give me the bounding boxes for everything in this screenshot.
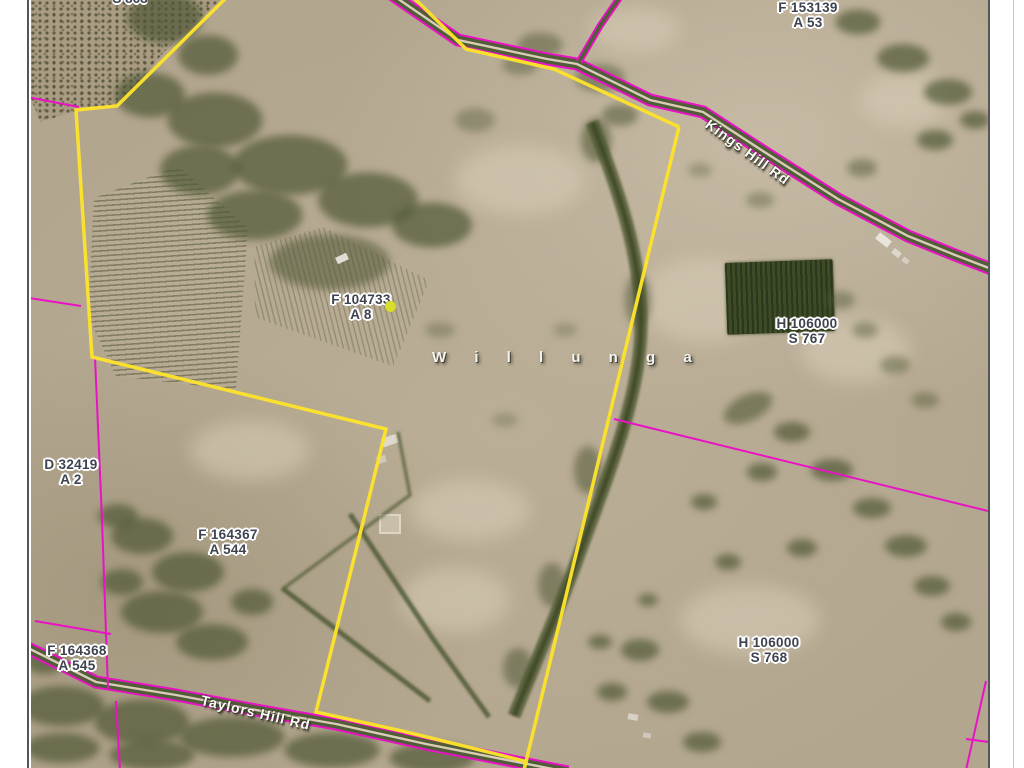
building (376, 455, 387, 464)
vegetation-patch (597, 683, 627, 701)
vegetation-patch (647, 691, 689, 713)
vegetation-patch (455, 108, 495, 132)
vegetation-patch (924, 79, 972, 105)
parcel-number: A 2 (60, 472, 81, 487)
vegetation-patch (502, 55, 538, 75)
terrain-patch (590, 8, 680, 53)
vegetation-patch (852, 322, 878, 338)
highlight-boundary (76, 0, 679, 768)
locality-label: W i l l u n g a (432, 349, 704, 366)
vegetation-patch (152, 552, 224, 592)
vegetation-patch (688, 163, 712, 177)
vegetation-patch (917, 130, 953, 150)
plan-number: F 104733 (331, 292, 390, 307)
vegetation-patch (836, 10, 881, 35)
plan-number: H 106000 (739, 635, 800, 650)
plan-number: S 868 (112, 0, 147, 6)
vegetation-patch (98, 504, 138, 528)
vegetation-patch (719, 385, 777, 431)
vegetation-patch (101, 569, 143, 595)
vegetation-patch (20, 686, 105, 726)
vegetation-patch (95, 700, 190, 745)
vegetation-patch (208, 190, 303, 240)
parcel-number: A 8 (350, 307, 371, 322)
vegetation-patch (691, 494, 717, 510)
vegetation-patch (847, 159, 877, 177)
plan-number: F 164368 (47, 643, 106, 658)
vegetation-patch (581, 118, 611, 162)
vegetation-patch (160, 145, 240, 195)
terrain-patch (400, 568, 510, 633)
vegetation-patch (787, 539, 817, 557)
map-outer-border (1013, 0, 1014, 768)
parcel-number: S 768 (751, 650, 788, 665)
terrain-patch (410, 480, 530, 540)
vegetation-patch (914, 576, 950, 596)
building (381, 434, 399, 448)
building (901, 256, 910, 264)
parcel-label-truncated: S 868 (112, 0, 147, 7)
terrain-patch (455, 145, 585, 215)
building (643, 732, 652, 738)
map-border-right (988, 0, 990, 768)
road-kings-hill (391, 0, 994, 270)
plan-number: H 106000 (777, 316, 838, 331)
vegetation-patch (575, 64, 625, 92)
vegetation-patch (390, 743, 475, 768)
vegetation-patch (425, 322, 455, 338)
vegetation-patch (553, 323, 577, 337)
parcel-number: S 767 (789, 331, 826, 346)
vegetation-patch (715, 554, 741, 570)
vegetation-patch (621, 639, 659, 661)
terrain-patch (190, 420, 310, 480)
vegetation-patch (941, 613, 971, 631)
vegetation-patch (285, 733, 380, 768)
vegetation-patch (877, 44, 929, 72)
vegetation-patch (911, 392, 939, 408)
plan-number: F 164367 (198, 527, 257, 542)
vegetation-patch (503, 648, 533, 688)
road-label-kings-hill: Kings Hill Rd (703, 116, 793, 188)
building (875, 232, 892, 248)
selected-point-marker (385, 301, 396, 312)
parcel-label: F 153139 A 53 (778, 0, 837, 30)
vegetation-patch (492, 413, 518, 427)
parcel-label: F 164368 A 545 (47, 643, 106, 673)
vegetation-patch (774, 422, 810, 442)
vegetation-patch (392, 203, 472, 248)
parcel-label: F 104733 A 8 (331, 292, 390, 322)
vegetation-patch (168, 93, 263, 148)
vegetation-patch (811, 459, 853, 481)
left-margin (0, 0, 31, 768)
vegetation-patch (574, 446, 602, 494)
building (628, 713, 639, 721)
vegetation-patch (538, 563, 566, 607)
vegetation-patch (176, 624, 248, 660)
parcel-number: A 545 (58, 658, 95, 673)
vegetation-patch (885, 535, 927, 557)
building (379, 514, 401, 534)
vegetation-patch (270, 235, 390, 290)
vegetation-patch (960, 111, 990, 129)
map-border-left (27, 0, 29, 768)
parcel-label: H 106000 S 768 (739, 635, 800, 665)
vegetation-patch (853, 498, 891, 518)
vegetation-patch (110, 740, 195, 768)
vegetation-patch (518, 33, 563, 58)
vegetation-patch (880, 356, 910, 374)
vegetation-patch (25, 733, 100, 763)
right-margin (988, 0, 1024, 768)
aerial-map-canvas[interactable]: F 153139 A 53 F 104733 A 8 H 106000 S 76… (0, 0, 1024, 768)
map-sheet: F 153139 A 53 F 104733 A 8 H 106000 S 76… (0, 0, 1024, 768)
vegetation-patch (638, 594, 658, 606)
parcel-number: A 544 (209, 542, 246, 557)
parcel-label: D 32419 A 2 (44, 457, 97, 487)
vegetation-patch (747, 463, 777, 481)
parcel-label: H 106000 S 767 (777, 316, 838, 346)
parcel-number: A 53 (793, 15, 822, 30)
vegetation-patch (588, 635, 612, 649)
vegetation-patch (625, 274, 651, 326)
vegetation-patch (178, 35, 238, 75)
vegetation-patch (825, 291, 855, 309)
building (891, 248, 902, 258)
vegetation-patch (746, 192, 774, 208)
plan-number: F 153139 (778, 0, 837, 15)
plan-number: D 32419 (44, 457, 97, 472)
vegetation-patch (231, 589, 273, 615)
parcel-label: F 164367 A 544 (198, 527, 257, 557)
vegetation-patch (602, 104, 638, 126)
vegetation-patch (683, 732, 721, 752)
